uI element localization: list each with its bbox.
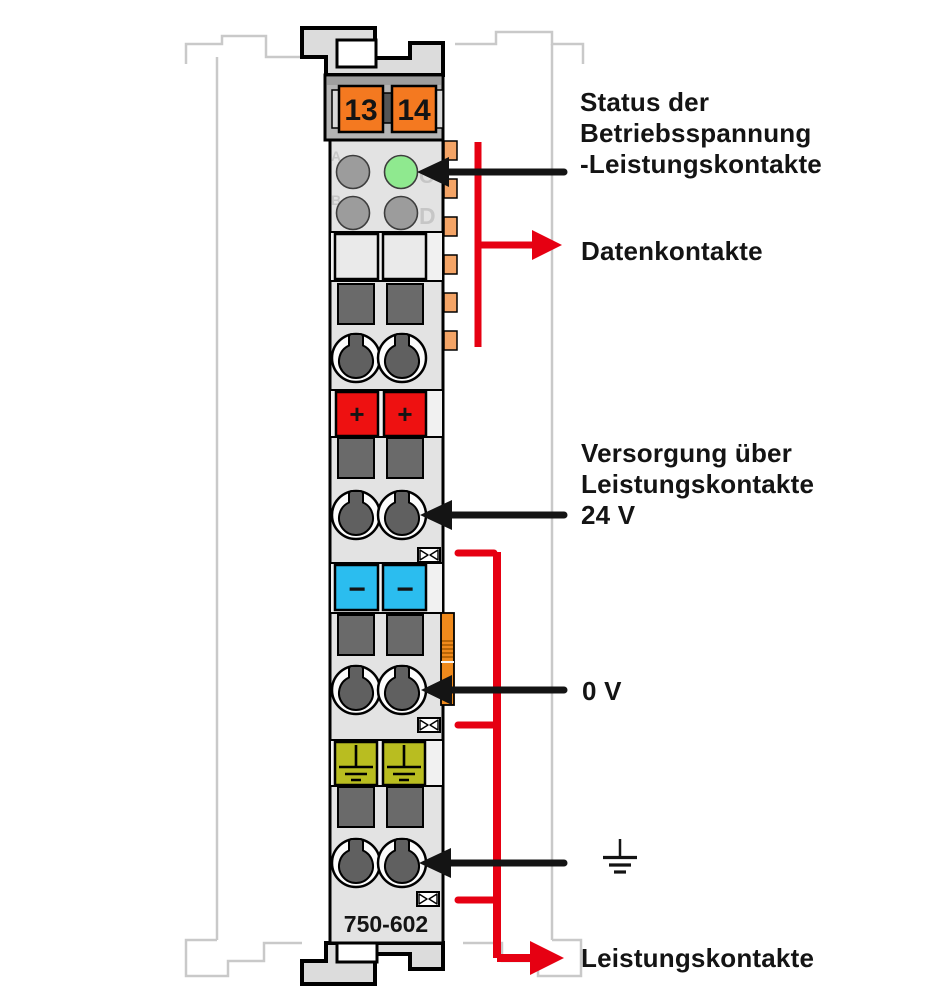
red-arrow-right-icon <box>530 941 564 975</box>
left-neighbor-top-profile <box>186 36 302 64</box>
status-led-green <box>385 156 418 189</box>
wire-port-left <box>338 787 374 827</box>
plain-terminal-right <box>383 234 426 279</box>
wire-port-left <box>338 438 374 478</box>
terminal-row-24v: + + <box>330 390 443 437</box>
power-jumper-contact-icon <box>418 718 440 732</box>
wire-port-right <box>387 787 423 827</box>
terminal-row-0v: − − <box>330 563 443 613</box>
plus-marking-left: + <box>349 399 364 429</box>
left-neighbor-bottom-profile <box>186 940 302 976</box>
supply-callout-line: 24 V <box>581 500 814 531</box>
data-contact-tab <box>444 141 457 160</box>
supply-callout-label: Versorgung über Leistungskontakte 24 V <box>581 438 814 531</box>
status-callout-label: Status der Betriebsspannung -Leistungsko… <box>580 87 822 180</box>
data-contact-tab <box>444 293 457 312</box>
data-contacts-callout-label: Datenkontakte <box>581 236 763 267</box>
diagram-canvas: 13 14 A B C D + + <box>0 0 930 1004</box>
status-callout-line: Betriebsspannung <box>580 118 822 149</box>
terminal-row-ground <box>330 740 443 786</box>
data-contact-tab <box>444 255 457 274</box>
led-b <box>337 197 370 230</box>
led-label-d: D <box>419 203 436 229</box>
led-d <box>385 197 418 230</box>
terminal-14-number: 14 <box>397 94 431 127</box>
zero-volt-callout-text: 0 V <box>582 676 622 707</box>
power-contacts-callout-text: Leistungskontakte <box>581 943 814 974</box>
wire-port-right <box>387 284 423 324</box>
module-head: 13 14 <box>325 75 443 140</box>
plain-terminal-left <box>335 234 378 279</box>
module-bottom-mounting-foot <box>302 943 443 984</box>
wire-port-right <box>387 615 423 655</box>
wire-port-left <box>338 615 374 655</box>
supply-callout-line: Versorgung über <box>581 438 814 469</box>
terminal-13-number: 13 <box>344 94 377 127</box>
power-contacts-callout-label: Leistungskontakte <box>581 943 814 974</box>
minus-marking-left: − <box>348 573 366 606</box>
data-contact-tab <box>444 331 457 350</box>
bottom-foot-notch <box>337 943 377 962</box>
adjacent-module-outline-left <box>186 36 302 976</box>
wire-port-right <box>387 438 423 478</box>
led-a <box>337 156 370 189</box>
zero-volt-callout-label: 0 V <box>582 676 622 707</box>
module-top-mounting-foot <box>302 28 443 75</box>
status-callout-line: Status der <box>580 87 822 118</box>
status-callout-line: -Leistungskontakte <box>580 149 822 180</box>
power-contacts-callout-line <box>458 552 564 975</box>
head-top-band <box>327 77 441 85</box>
part-number-text: 750-602 <box>344 911 428 937</box>
power-jumper-contact-icon <box>417 892 439 906</box>
top-foot-notch <box>337 40 376 67</box>
earth-ground-icon <box>603 839 637 872</box>
plus-marking-right: + <box>397 399 412 429</box>
data-contact-tab <box>444 217 457 236</box>
power-jumper-contact-icon <box>418 548 440 562</box>
right-neighbor-top-profile <box>455 32 583 64</box>
terminal-row-top <box>330 232 443 281</box>
minus-marking-right: − <box>396 573 414 606</box>
red-arrow-right-icon <box>532 230 562 260</box>
wire-port-left <box>338 284 374 324</box>
data-contacts-callout-text: Datenkontakte <box>581 236 763 267</box>
supply-callout-line: Leistungskontakte <box>581 469 814 500</box>
